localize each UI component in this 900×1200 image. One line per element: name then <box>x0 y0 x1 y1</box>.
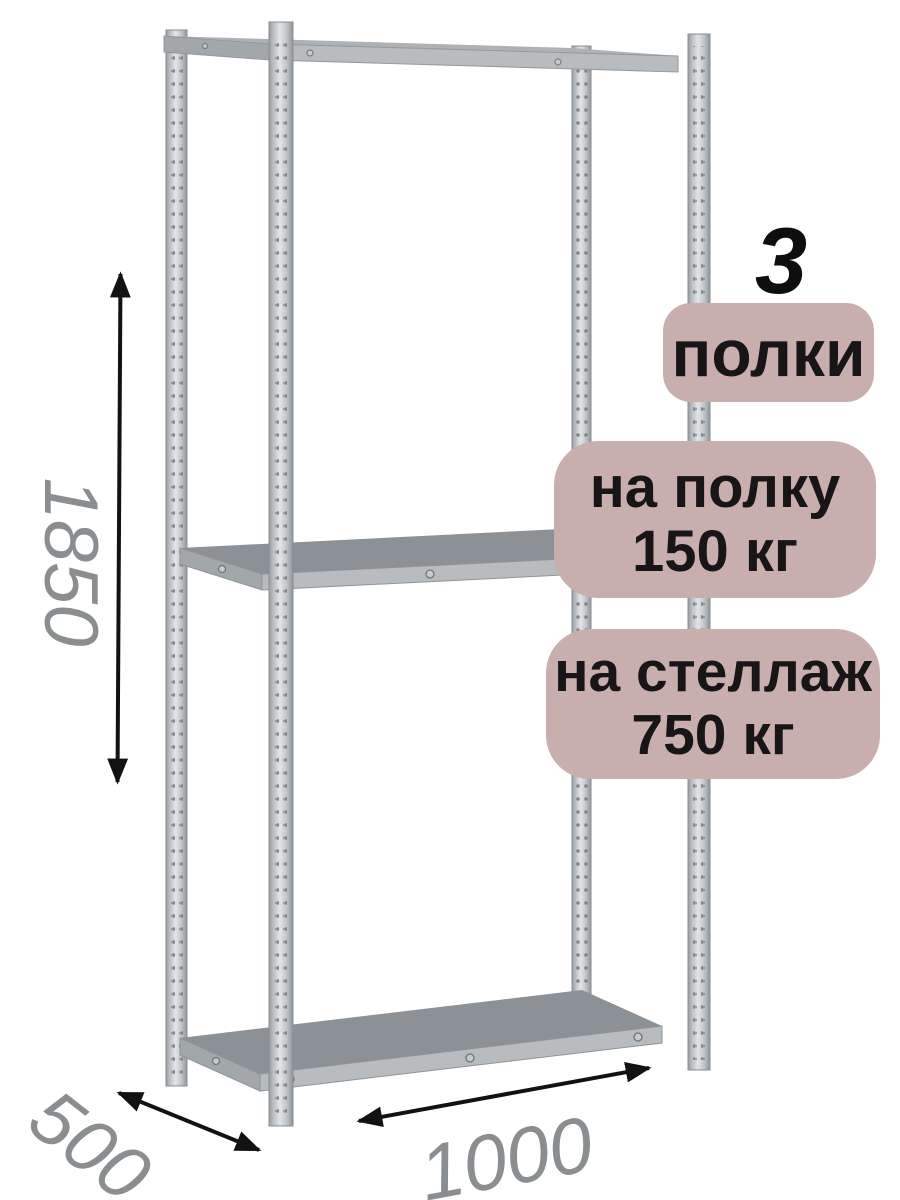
post-perforations <box>283 34 287 1116</box>
per-shelf-load-badge: на полку 150 кг <box>554 441 876 598</box>
depth-dimension-label: 500 <box>14 1073 166 1200</box>
product-card: 1850 500 1000 3 полки на полку 150 кг на… <box>0 0 900 1200</box>
bolt <box>634 1033 642 1041</box>
bolt <box>219 566 226 573</box>
shelf-count-badge-label: полки <box>663 315 874 391</box>
width-dimension: 1000 <box>359 1068 649 1200</box>
bolt <box>307 50 313 56</box>
height-dimension-label: 1850 <box>28 477 113 646</box>
post-body <box>269 22 293 1126</box>
per-rack-load-line2: 750 кг <box>546 704 880 767</box>
post-perforations <box>275 34 279 1116</box>
per-shelf-load-line2: 150 кг <box>554 520 876 584</box>
width-dimension-label: 1000 <box>413 1099 600 1200</box>
per-rack-load-badge: на стеллаж 750 кг <box>546 629 880 779</box>
width-arrow-icon <box>359 1068 649 1121</box>
per-shelf-load-line1: на полку <box>554 456 876 520</box>
bolt <box>203 44 208 49</box>
bolt <box>213 1058 220 1065</box>
bolt <box>426 570 434 578</box>
shelf-count-number: 3 <box>716 214 846 308</box>
bolt <box>555 59 561 65</box>
rack-illustration: 1850 500 1000 <box>0 0 900 1200</box>
shelf-count-badge: полки <box>663 303 874 402</box>
rack-shelf-bottom <box>180 990 662 1091</box>
post-perforations <box>171 42 175 1076</box>
depth-dimension: 500 <box>14 1073 259 1200</box>
height-dimension: 1850 <box>28 274 121 782</box>
per-rack-load-line1: на стеллаж <box>546 641 880 704</box>
height-arrow-icon <box>118 274 121 782</box>
rack-shelf-top <box>164 36 678 72</box>
rack-post-front-left <box>269 22 293 1126</box>
bolt <box>466 1054 474 1062</box>
